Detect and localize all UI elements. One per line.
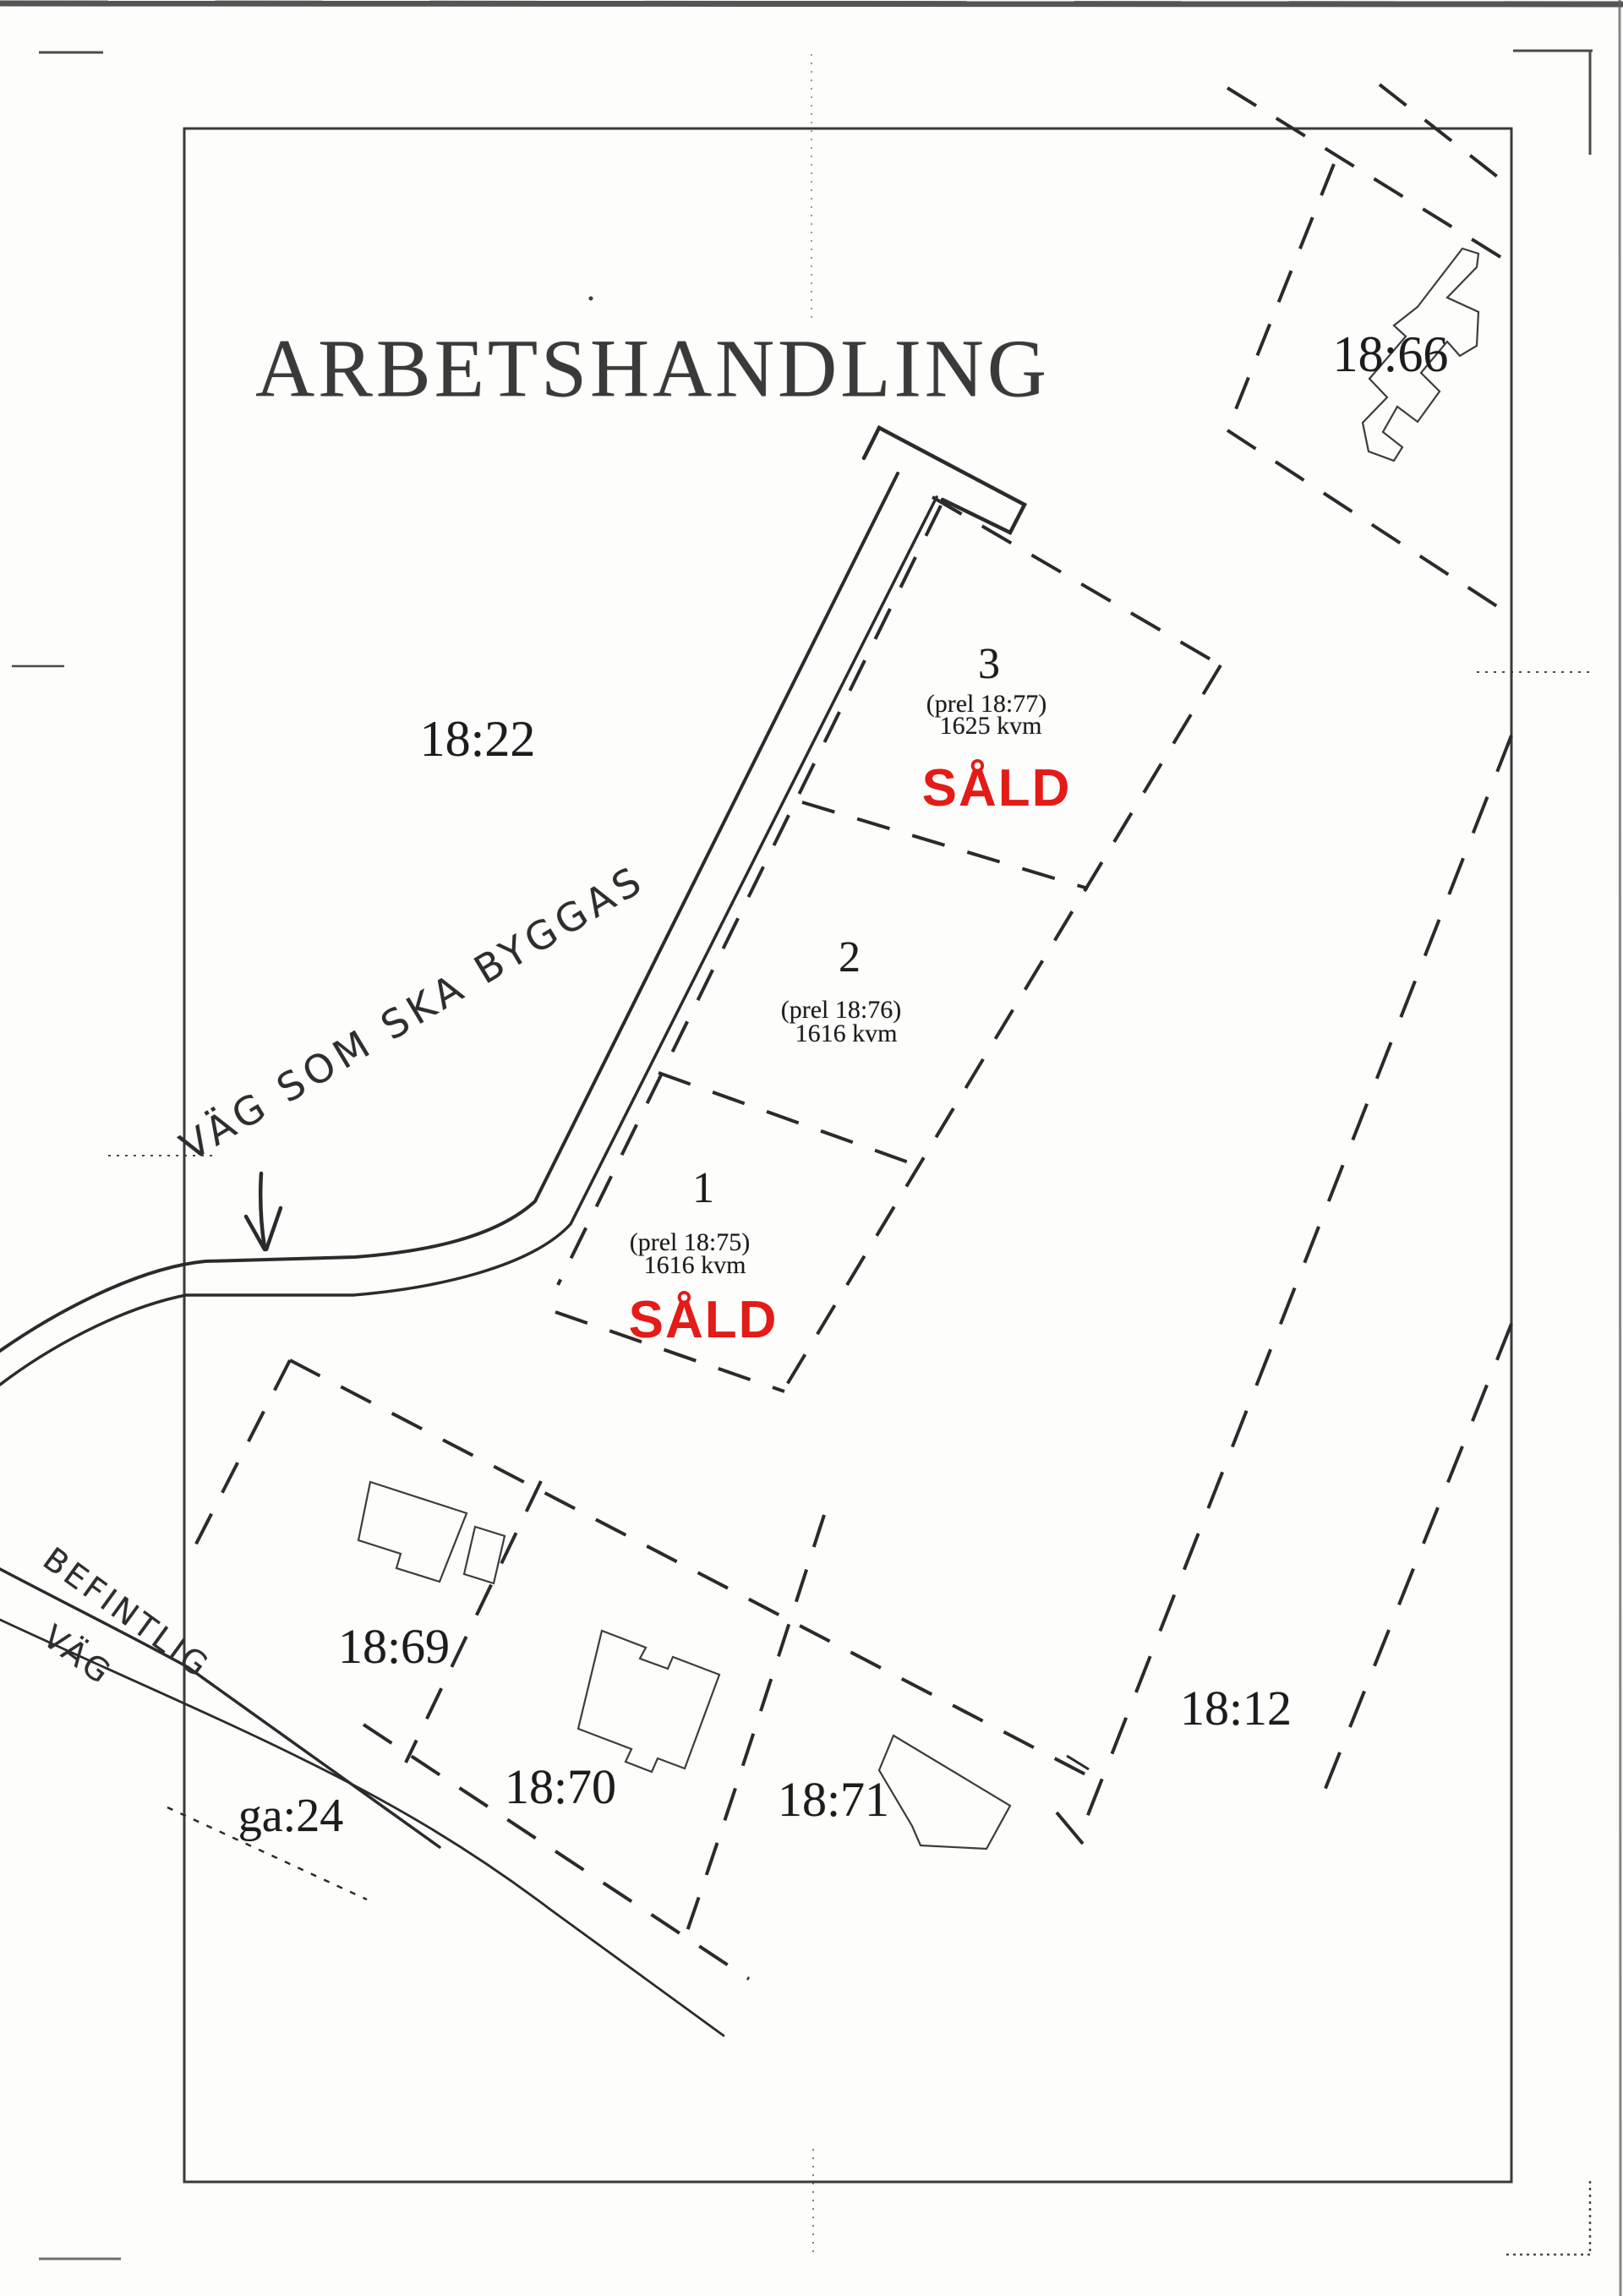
hand-drawn-arrow [246, 1173, 281, 1249]
parcel-label-18-69: 18:69 [338, 1622, 450, 1671]
parcel-label-ga-24: ga:24 [238, 1792, 343, 1840]
new-road-outline [0, 428, 1025, 1385]
p18-12-east-boundary [1316, 1324, 1511, 1812]
lot2-area: 1616 kvm [795, 1021, 898, 1047]
road-edge-east [0, 497, 937, 1385]
house-18-70 [578, 1631, 719, 1772]
road-t-turnaround [864, 428, 1025, 533]
bottom-right-corner-bracket [1506, 2181, 1593, 2255]
south-block-north-boundary [290, 1360, 1087, 1775]
existing-road-edge-north [0, 1569, 440, 1847]
lot3-number: 3 [978, 642, 1000, 686]
lot1-area: 1616 kvm [644, 1253, 746, 1278]
south-parcel-boundaries [191, 1360, 1087, 1979]
house-18-71 [879, 1736, 1010, 1849]
lot3-sold-stamp: SÅLD [922, 763, 1072, 815]
lot1-number: 1 [692, 1167, 714, 1211]
lot3-area: 1625 kvm [940, 713, 1042, 739]
map-frame [184, 128, 1511, 2182]
p18-66-ne-boundary-2 [1380, 85, 1511, 188]
parcel-18-12-boundaries [1080, 735, 1511, 1834]
lot-divider-2-1 [658, 1073, 918, 1166]
scan-top-edge-artifact [0, 3, 1623, 4]
lot1-sold-stamp: SÅLD [629, 1294, 779, 1347]
p18-66-south-boundary [1227, 430, 1510, 615]
p18-12-west-boundary [1080, 735, 1511, 1834]
scanned-cadastral-map-page: ARBETSHANDLING 18:66 18:22 3 (prel 18:77… [0, 0, 1623, 2296]
lot2-number: 2 [839, 936, 861, 980]
road-edge-west [0, 473, 898, 1351]
house-18-69-main [358, 1482, 467, 1582]
buildings [358, 249, 1478, 1849]
existing-road-edge-south [0, 1620, 724, 2036]
parcel-label-18-70: 18:70 [505, 1763, 616, 1812]
scan-speck [589, 297, 593, 301]
parcel-label-18-12: 18:12 [1180, 1684, 1292, 1733]
p18-66-ne-boundary [1227, 88, 1511, 264]
p18-66-west-boundary [1227, 164, 1334, 430]
page-title: ARBETSHANDLING [255, 328, 1050, 410]
p18-69-west-boundary [191, 1360, 290, 1554]
house-18-69-annex [464, 1527, 505, 1583]
lot3-north-boundary [932, 497, 1221, 665]
boundary-end-dash [1057, 1812, 1083, 1844]
parcel-label-18-22: 18:22 [420, 713, 536, 764]
parcel-label-18-71: 18:71 [778, 1775, 889, 1824]
top-right-corner-bracket [1513, 51, 1593, 155]
parcel-label-18-66: 18:66 [1333, 329, 1449, 380]
scan-right-edge-artifact [1620, 0, 1620, 2296]
